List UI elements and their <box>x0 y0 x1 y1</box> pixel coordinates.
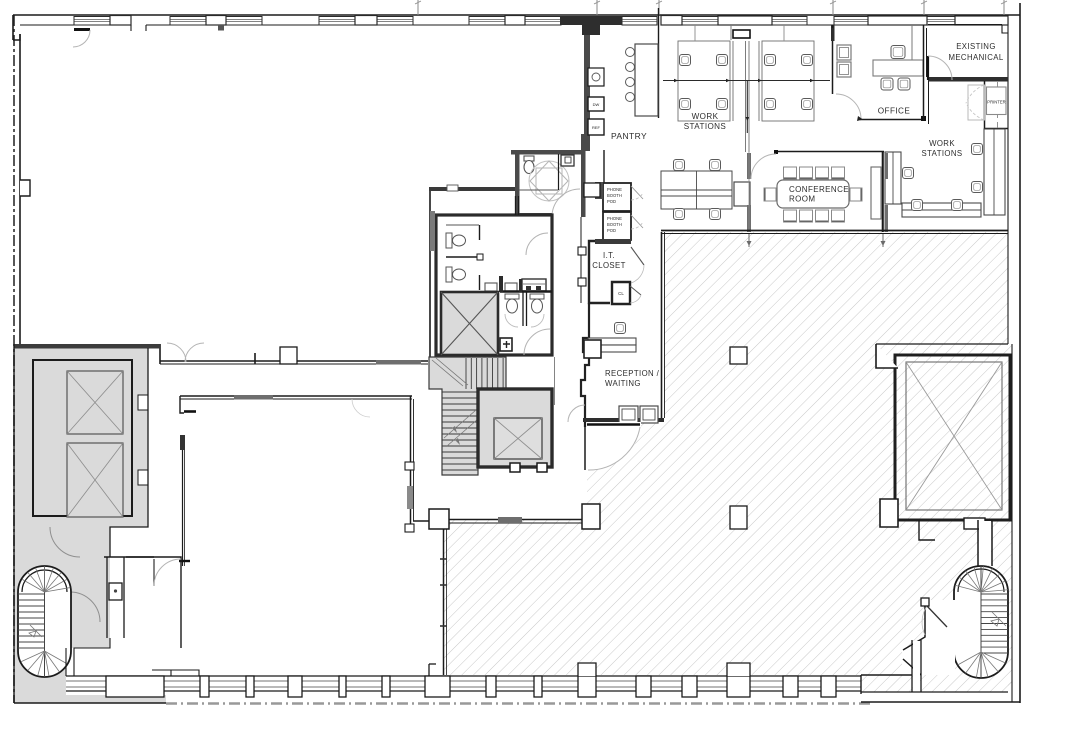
svg-text:WAITING: WAITING <box>605 379 641 388</box>
svg-text:WORK: WORK <box>692 112 719 121</box>
svg-text:I.T.: I.T. <box>603 251 615 260</box>
svg-text:CLOSET: CLOSET <box>592 261 626 270</box>
svg-text:EXISTING: EXISTING <box>956 42 996 51</box>
svg-text:CONFERENCE: CONFERENCE <box>789 185 849 194</box>
svg-text:RECEPTION /: RECEPTION / <box>605 369 660 378</box>
svg-text:BOOTH: BOOTH <box>607 193 622 198</box>
svg-text:PHONE: PHONE <box>607 187 622 192</box>
svg-text:PANTRY: PANTRY <box>611 131 647 141</box>
svg-text:PRINTER: PRINTER <box>987 100 1005 105</box>
svg-text:STATIONS: STATIONS <box>684 122 727 131</box>
svg-text:BOOTH: BOOTH <box>607 222 622 227</box>
svg-text:MECHANICAL: MECHANICAL <box>948 53 1003 62</box>
svg-text:OFFICE: OFFICE <box>878 107 911 116</box>
svg-text:STATIONS: STATIONS <box>921 149 962 158</box>
svg-text:WORK: WORK <box>929 139 955 148</box>
svg-text:DW: DW <box>593 102 600 107</box>
svg-text:PHONE: PHONE <box>607 216 622 221</box>
svg-text:REF: REF <box>592 125 601 130</box>
svg-text:POD: POD <box>607 199 616 204</box>
svg-text:POD: POD <box>607 228 616 233</box>
svg-text:ROOM: ROOM <box>789 195 816 204</box>
svg-text:CL: CL <box>618 291 624 296</box>
